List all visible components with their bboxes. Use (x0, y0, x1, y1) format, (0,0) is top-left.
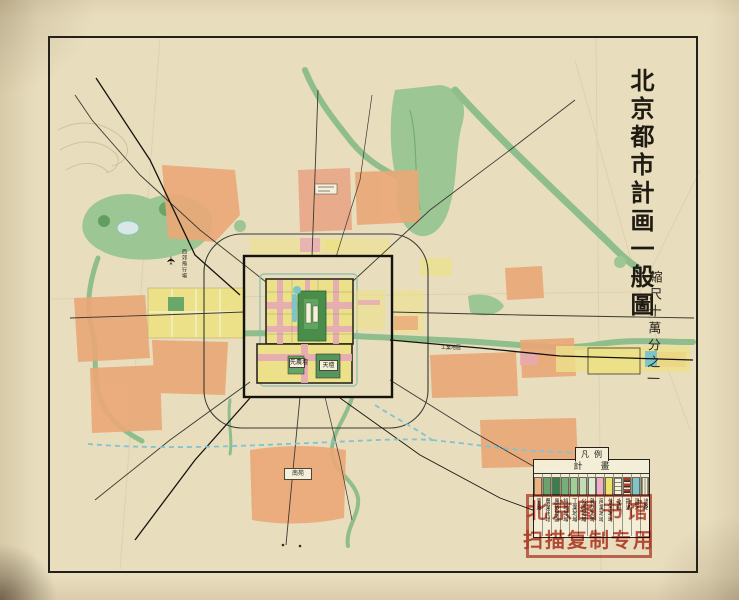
legend-header: 計畫 (534, 460, 649, 474)
legend-item-8: 商業地域 (596, 474, 605, 536)
legend-swatch (605, 477, 613, 496)
yellow-districts (148, 238, 690, 374)
map-label: 先農壇 (289, 358, 305, 368)
map-label: 西郊飛行場 (181, 249, 186, 279)
legend-swatch (641, 477, 649, 496)
legend-item-7: 雜居地域 (588, 474, 597, 536)
legend-label: 運河 (633, 498, 639, 536)
legend-swatch (632, 477, 640, 496)
legend-swatch (552, 477, 560, 496)
legend-item-2: 農業用地 (543, 474, 552, 536)
map-sheet: ✈ 西郊飛行場南苑天壇先農壇工業地區 北京都市計画一般圖 縮尺十萬分之一 凡例 … (0, 0, 739, 600)
legend-item-12: 運河 (632, 474, 641, 536)
legend-columns: 官廳農業用地風致地區緑地地域工業地域公園地域雜居地域商業地域住宅地域水面鐵道運河… (534, 474, 649, 536)
map-label: 天壇 (319, 360, 338, 371)
legend-label: 道路 (642, 498, 648, 536)
legend-swatch (561, 477, 569, 496)
map-label: 南苑 (284, 468, 312, 480)
legend-item-11: 鐵道 (623, 474, 632, 536)
legend-item-3: 風致地區 (552, 474, 561, 536)
legend-item-6: 公園地域 (579, 474, 588, 536)
legend-label: 緑地地域 (562, 498, 568, 536)
legend-label: 雜居地域 (588, 498, 594, 536)
scale-note: 縮尺十萬分之一 (642, 270, 665, 410)
legend-swatch (543, 477, 551, 496)
airplane-icon: ✈ (165, 256, 178, 265)
legend-swatch (614, 477, 622, 496)
legend-label: 公園地域 (580, 498, 586, 536)
legend-label: 工業地域 (571, 498, 577, 536)
legend-label: 風致地區 (553, 498, 559, 536)
legend-label: 商業地域 (597, 498, 603, 536)
legend-item-1: 官廳 (534, 474, 543, 536)
legend-swatch (623, 477, 631, 496)
legend-item-9: 住宅地域 (605, 474, 614, 536)
legend-swatch (579, 477, 587, 496)
legend-swatch (534, 477, 542, 496)
legend-box: 凡例 計畫 官廳農業用地風致地區緑地地域工業地域公園地域雜居地域商業地域住宅地域… (533, 459, 650, 538)
legend-label: 水面 (615, 498, 621, 536)
legend-item-10: 水面 (614, 474, 623, 536)
legend-item-13: 道路 (641, 474, 649, 536)
legend-item-5: 工業地域 (570, 474, 579, 536)
legend-label: 鐵道 (624, 498, 630, 536)
legend-swatch (588, 477, 596, 496)
legend-label: 住宅地域 (606, 498, 612, 536)
legend-label: 農業用地 (544, 498, 550, 536)
walled-city (244, 256, 392, 397)
legend-label: 官廳 (535, 498, 541, 536)
legend-item-4: 緑地地域 (561, 474, 570, 536)
legend-swatch (596, 477, 604, 496)
legend-swatch (570, 477, 578, 496)
map-label: 工業地區 (441, 346, 461, 351)
legend-title: 凡例 (575, 447, 609, 461)
